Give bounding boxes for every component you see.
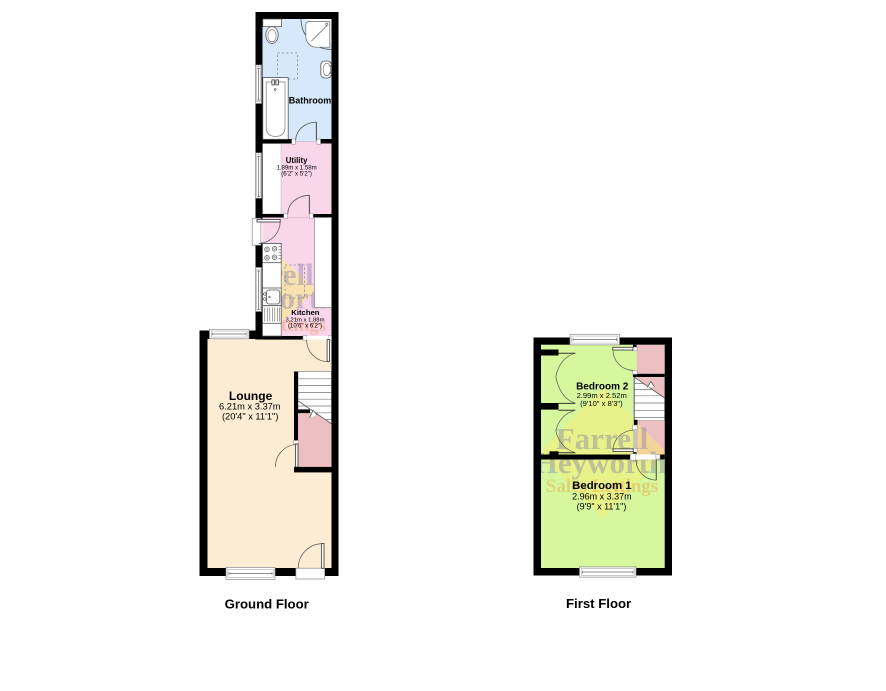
svg-text:(10'6" x 6'2"): (10'6" x 6'2") [288,323,322,330]
svg-text:Kitchen: Kitchen [291,308,319,317]
svg-text:Bathroom: Bathroom [289,95,332,105]
svg-text:First Floor: First Floor [566,596,631,611]
svg-text:(6'2" x 5'2"): (6'2" x 5'2") [281,171,312,178]
svg-text:(9'10" x 8'3"): (9'10" x 8'3") [580,399,623,408]
svg-text:6.21m x 3.37m: 6.21m x 3.37m [219,402,281,412]
svg-text:Ground Floor: Ground Floor [225,597,309,612]
svg-text:Heyworth: Heyworth [534,445,667,480]
svg-text:(9'9" x 11'1"): (9'9" x 11'1") [577,501,627,511]
svg-text:2.96m x 3.37m: 2.96m x 3.37m [572,491,632,501]
svg-text:Bedroom 1: Bedroom 1 [572,480,632,492]
svg-text:(20'4" x 11'1"): (20'4" x 11'1") [222,411,279,421]
